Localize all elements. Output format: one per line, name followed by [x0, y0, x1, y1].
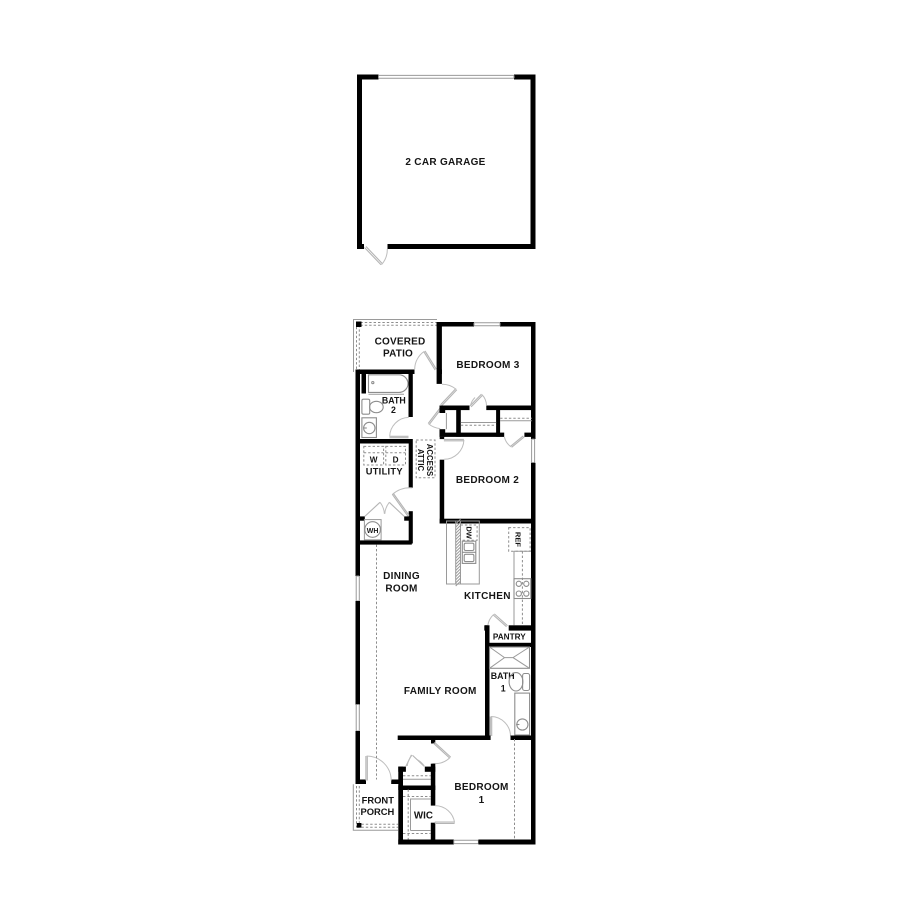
- svg-text:1: 1: [501, 684, 506, 694]
- svg-text:PATIO: PATIO: [383, 348, 413, 359]
- svg-text:PANTRY: PANTRY: [493, 632, 526, 641]
- svg-text:BEDROOM 2: BEDROOM 2: [456, 475, 519, 486]
- svg-text:ATTIC: ATTIC: [416, 449, 425, 472]
- svg-text:ACCESS: ACCESS: [425, 444, 434, 477]
- svg-text:UTILITY: UTILITY: [366, 467, 404, 477]
- svg-text:DINING: DINING: [383, 571, 420, 582]
- svg-text:FRONT: FRONT: [362, 794, 395, 805]
- svg-text:WIC: WIC: [414, 811, 433, 822]
- svg-text:DW: DW: [465, 526, 474, 539]
- svg-text:W: W: [370, 456, 378, 465]
- svg-text:WH: WH: [367, 528, 379, 535]
- svg-text:KITCHEN: KITCHEN: [464, 591, 511, 602]
- svg-text:1: 1: [479, 795, 485, 806]
- svg-text:BEDROOM 3: BEDROOM 3: [456, 360, 519, 371]
- svg-text:D: D: [393, 456, 399, 465]
- svg-text:FAMILY ROOM: FAMILY ROOM: [404, 686, 477, 697]
- svg-text:REF: REF: [514, 532, 523, 547]
- svg-text:PORCH: PORCH: [360, 806, 394, 817]
- svg-text:COVERED: COVERED: [375, 336, 426, 347]
- svg-text:2 CAR GARAGE: 2 CAR GARAGE: [405, 157, 485, 168]
- svg-text:BATH: BATH: [382, 395, 406, 405]
- svg-text:ROOM: ROOM: [385, 584, 417, 595]
- svg-text:BEDROOM: BEDROOM: [454, 782, 508, 793]
- svg-text:2: 2: [391, 405, 396, 415]
